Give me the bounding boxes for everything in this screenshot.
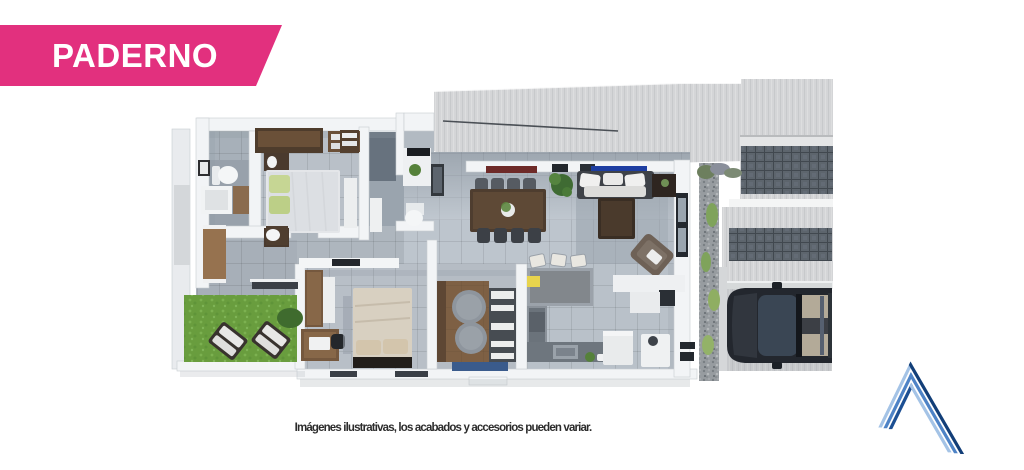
svg-text:PADERNO: PADERNO xyxy=(52,37,218,74)
svg-text:Imágenes ilustrativas, los aca: Imágenes ilustrativas, los acabados y ac… xyxy=(295,422,592,434)
